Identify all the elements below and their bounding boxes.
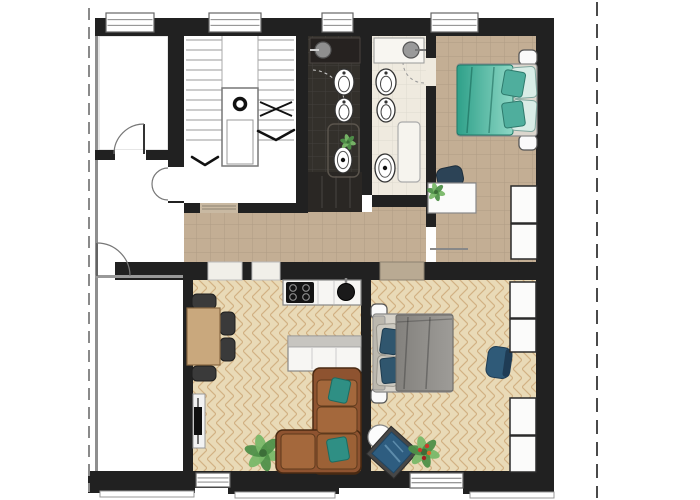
- dining-chair-right-b: [220, 338, 235, 361]
- kitchen-sink: [338, 284, 355, 301]
- window-neighbor-room: [106, 13, 154, 32]
- pillow-top-accent-b: [501, 101, 525, 129]
- threshold-living-door-2: [252, 262, 280, 280]
- wall-utility-block: [308, 172, 362, 212]
- opening-bath-door: [426, 58, 436, 86]
- dining-table: [187, 308, 220, 365]
- threshold-bedroom-door: [380, 262, 424, 280]
- island-counter-top: [288, 336, 361, 347]
- bidet-dark-bath: [335, 98, 353, 122]
- floor-hallway: [184, 212, 426, 262]
- tv: [194, 407, 202, 435]
- floor-plan-svg: [0, 0, 700, 500]
- wall-room-bottom-right: [146, 150, 168, 160]
- facade-ledge-2: [235, 492, 335, 498]
- nightstand-top-bedroom-a: [519, 50, 537, 65]
- door-arc-stair-upper: [152, 168, 168, 184]
- wall-stair-right: [296, 18, 308, 203]
- shower-tray-dark: [334, 147, 352, 173]
- wall-rooms-divider: [361, 278, 371, 474]
- facade-ledge-1: [100, 491, 194, 497]
- sofa-cushion-3: [281, 434, 315, 469]
- floor-hallway-nook: [372, 207, 426, 212]
- wall-bathlight-bottom: [372, 195, 426, 207]
- threshold-living-door-1: [208, 262, 242, 280]
- dining-chair-right-a: [220, 312, 235, 335]
- wall-living-left: [183, 262, 193, 474]
- wardrobe-bottom-bedroom-d: [510, 436, 536, 472]
- cabinet-light-bath: [398, 122, 420, 182]
- dining-chair-top: [192, 294, 216, 309]
- door-arc-stair-lower: [152, 184, 168, 200]
- shower-tray-light: [375, 154, 395, 182]
- stove: [286, 282, 314, 303]
- sofa-cushion-2: [317, 407, 357, 433]
- floor-plan: [0, 0, 700, 500]
- stair-column: [235, 99, 246, 110]
- facade-ledge-3: [470, 492, 554, 498]
- bidet-light-bath: [377, 98, 395, 122]
- wall-right: [536, 18, 554, 474]
- wardrobe-bottom-bedroom-c: [510, 398, 536, 435]
- wall-bath-bedroom: [426, 30, 436, 195]
- dining-chair-bottom: [192, 366, 216, 381]
- wall-entry-left: [184, 203, 200, 213]
- wall-hall-south-right: [424, 262, 540, 280]
- wall-court-partition: [95, 275, 183, 278]
- window-bedroom-bottom: [410, 473, 463, 488]
- floor-entry: [200, 203, 238, 213]
- pillow-top-accent-a: [501, 69, 526, 97]
- elevator-car: [227, 120, 253, 164]
- wardrobe-top-bedroom-b: [511, 224, 537, 259]
- floor-neighbor-room: [99, 36, 168, 150]
- wardrobe-top-bedroom-a: [511, 186, 537, 223]
- window-bathroom: [322, 13, 353, 32]
- wardrobe-bottom-bedroom-a: [510, 282, 536, 318]
- wall-bath-divider: [360, 30, 372, 195]
- wall-entry-right: [238, 203, 308, 213]
- opening-room-door: [115, 150, 146, 160]
- nightstand-top-bedroom-b: [519, 135, 537, 150]
- opening-stair-door: [168, 167, 184, 201]
- sofa-pillow-1: [328, 377, 351, 403]
- wall-bay-left: [88, 471, 195, 493]
- window-bedroom-top: [431, 13, 478, 32]
- wall-hall-south-mid: [280, 262, 380, 280]
- toilet-light-bath: [376, 69, 396, 95]
- wall-room-bottom-left: [95, 150, 115, 160]
- sofa-pillow-2: [326, 436, 350, 462]
- window-stairwell: [209, 13, 261, 32]
- window-living-room: [196, 473, 230, 487]
- wardrobe-bottom-bedroom-b: [510, 319, 536, 352]
- toilet-dark-bath: [334, 69, 354, 95]
- wall-hall-south-post: [242, 262, 252, 280]
- wall-bay-right: [463, 471, 554, 494]
